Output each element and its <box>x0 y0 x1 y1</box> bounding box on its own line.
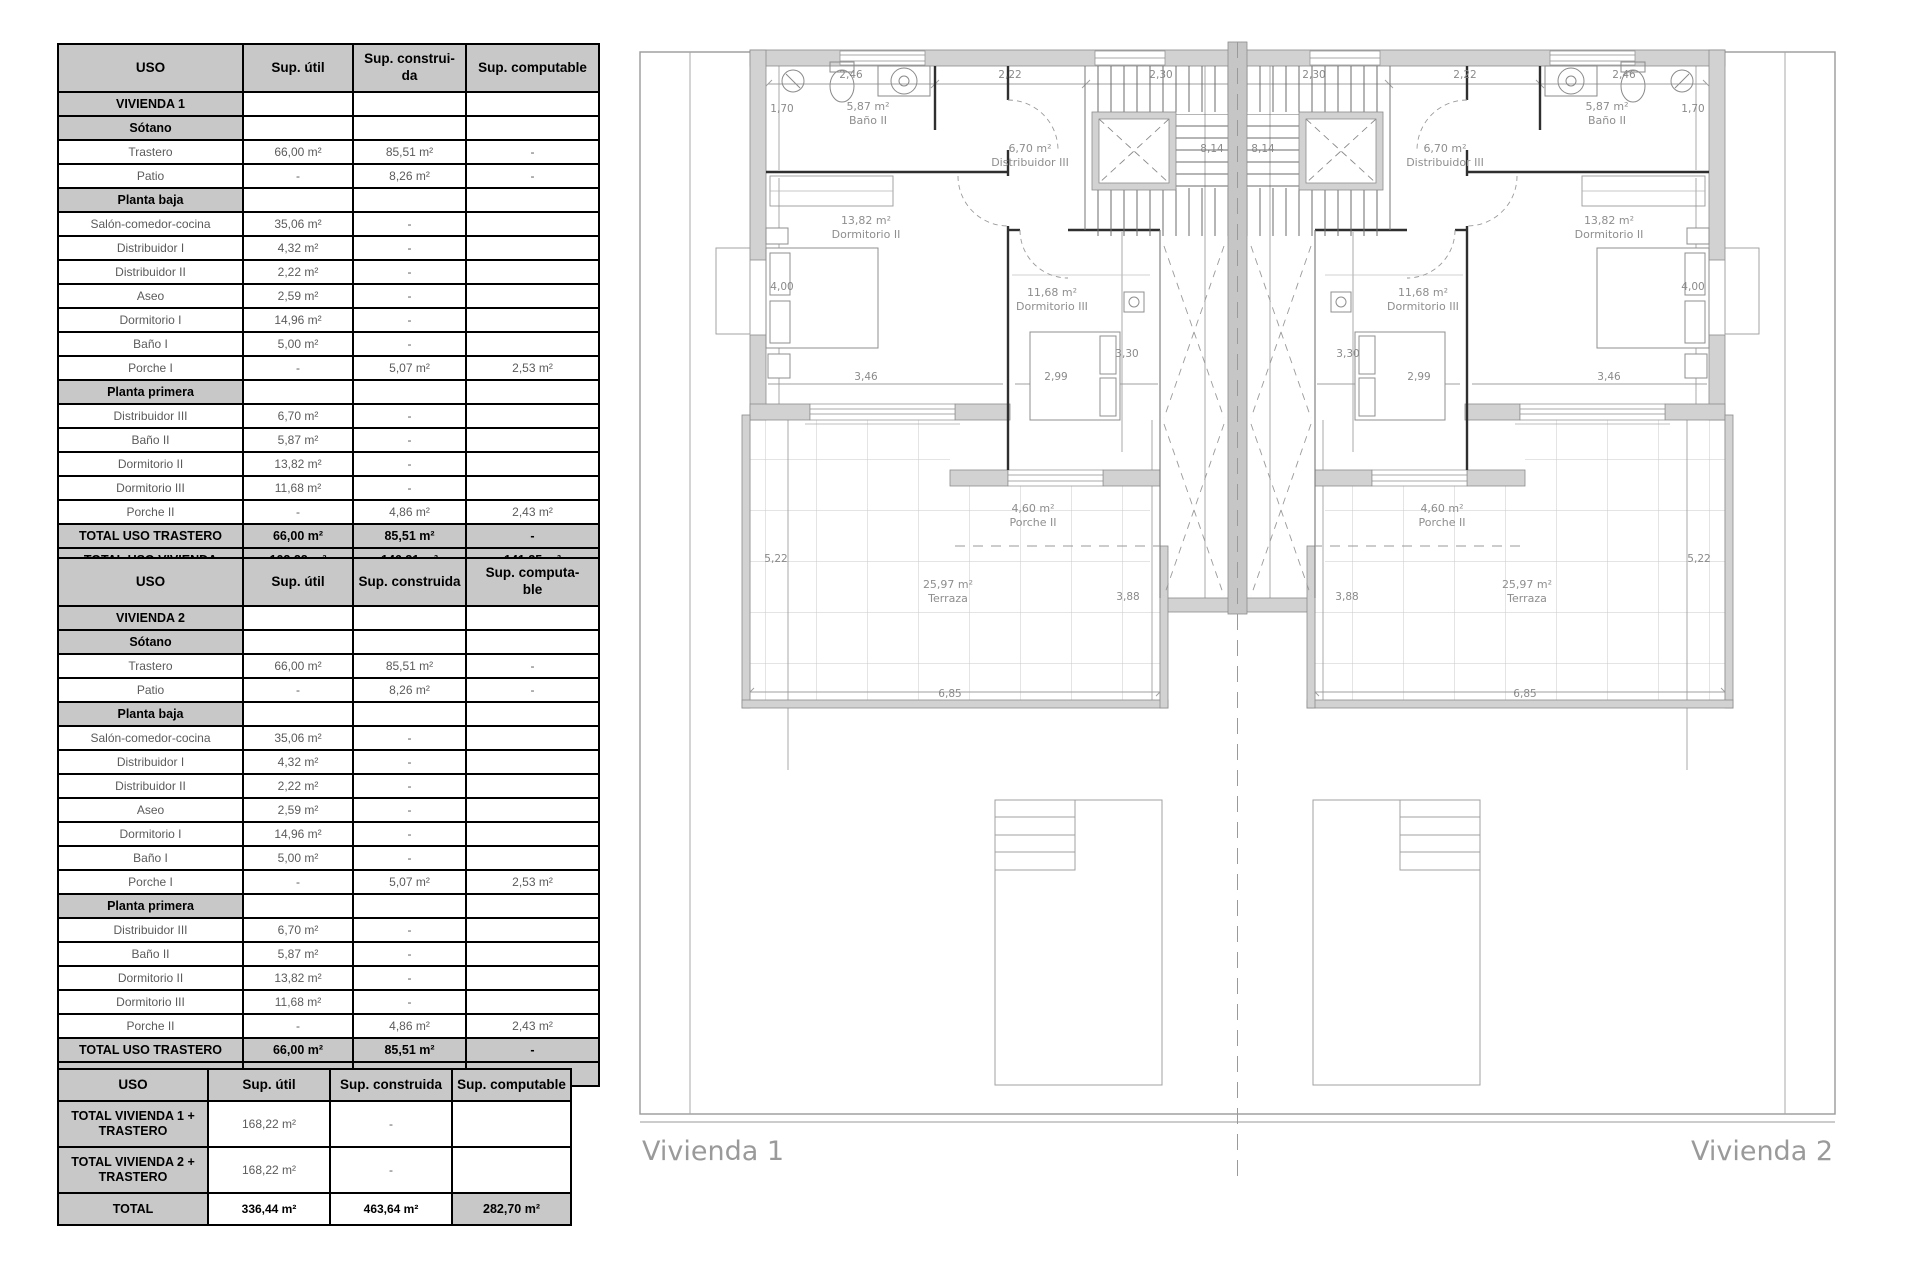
table-cell <box>466 726 599 750</box>
table-cell <box>353 116 466 140</box>
table-cell: - <box>243 870 353 894</box>
table-row: Planta baja <box>58 188 599 212</box>
column-header: Sup. útil <box>208 1069 330 1101</box>
table-cell <box>243 188 353 212</box>
table-cell: Distribuidor II <box>58 260 243 284</box>
table-cell: Dormitorio II <box>58 966 243 990</box>
dimension-label: 3,46 <box>1597 371 1621 383</box>
table-cell <box>243 630 353 654</box>
table-cell: 6,70 m² <box>243 404 353 428</box>
dimension-label: 3,46 <box>854 371 878 383</box>
table-cell <box>353 92 466 116</box>
table-cell: Aseo <box>58 798 243 822</box>
table-cell <box>466 332 599 356</box>
table-cell: 85,51 m² <box>353 140 466 164</box>
table-cell: - <box>353 798 466 822</box>
table-cell <box>466 894 599 918</box>
dimension-label: 5,22 <box>764 553 787 565</box>
table-cell: Planta baja <box>58 188 243 212</box>
table-cell <box>466 212 599 236</box>
table-cell: 8,26 m² <box>353 164 466 188</box>
table-cell: 2,53 m² <box>466 870 599 894</box>
column-header: USO <box>58 44 243 92</box>
table-cell: - <box>243 164 353 188</box>
table-cell <box>466 966 599 990</box>
dimension-label: 2,22 <box>1453 69 1476 81</box>
table-row: VIVIENDA 1 <box>58 92 599 116</box>
table-cell: 85,51 m² <box>353 524 466 548</box>
table-row: Baño II5,87 m²- <box>58 942 599 966</box>
table-cell: Porche I <box>58 356 243 380</box>
table-cell: 5,87 m² <box>243 428 353 452</box>
table-cell <box>466 630 599 654</box>
table-row: Dormitorio III11,68 m²- <box>58 990 599 1014</box>
table-cell: Dormitorio III <box>58 476 243 500</box>
table-cell: - <box>466 164 599 188</box>
table-cell <box>466 822 599 846</box>
table-cell: 66,00 m² <box>243 654 353 678</box>
table-row: Distribuidor II2,22 m²- <box>58 260 599 284</box>
table-cell: 282,70 m² <box>452 1193 571 1225</box>
table-cell <box>466 774 599 798</box>
table-cell: 13,82 m² <box>243 966 353 990</box>
column-header: Sup. computable <box>452 1069 571 1101</box>
table-cell: TOTAL VIVIENDA 1 + TRASTERO <box>58 1101 208 1147</box>
table-cell: 85,51 m² <box>353 1038 466 1062</box>
vivienda-2-label: Vivienda 2 <box>1691 1136 1833 1167</box>
table-row: Patio-8,26 m²- <box>58 678 599 702</box>
floorplan: 5,87 m²Baño II6,70 m²Distribuidor III13,… <box>630 40 1850 1180</box>
dimension-label: 2,30 <box>1149 69 1172 81</box>
table-cell <box>466 116 599 140</box>
table-cell <box>353 188 466 212</box>
column-header: Sup. computa- ble <box>466 558 599 606</box>
table-cell <box>452 1147 571 1193</box>
table-cell: Aseo <box>58 284 243 308</box>
table-row: Dormitorio I14,96 m²- <box>58 822 599 846</box>
table-cell: 66,00 m² <box>243 140 353 164</box>
table-cell <box>466 750 599 774</box>
table-cell <box>466 452 599 476</box>
table-cell: 5,07 m² <box>353 356 466 380</box>
column-header: Sup. computable <box>466 44 599 92</box>
table-cell: Porche II <box>58 1014 243 1038</box>
table-cell <box>466 846 599 870</box>
table-cell: TOTAL VIVIENDA 2 + TRASTERO <box>58 1147 208 1193</box>
table-cell: 11,68 m² <box>243 990 353 1014</box>
table-cell: Trastero <box>58 654 243 678</box>
table-cell <box>243 116 353 140</box>
table-cell <box>353 606 466 630</box>
table-cell: 13,82 m² <box>243 452 353 476</box>
table-cell: - <box>353 428 466 452</box>
table-row: TOTAL VIVIENDA 2 + TRASTERO168,22 m²- <box>58 1147 571 1193</box>
table-cell <box>452 1101 571 1147</box>
table-cell: - <box>353 942 466 966</box>
table-cell: Dormitorio III <box>58 990 243 1014</box>
table-row: Distribuidor II2,22 m²- <box>58 774 599 798</box>
dimension-label: 1,70 <box>1681 103 1704 115</box>
table-row: Sótano <box>58 116 599 140</box>
table-cell: 5,00 m² <box>243 332 353 356</box>
table-cell: 168,22 m² <box>208 1147 330 1193</box>
table-cell: 11,68 m² <box>243 476 353 500</box>
table-cell: - <box>353 476 466 500</box>
table-cell <box>466 798 599 822</box>
table-cell <box>466 428 599 452</box>
table-row: Aseo2,59 m²- <box>58 284 599 308</box>
table-cell: Planta baja <box>58 702 243 726</box>
table-cell <box>243 702 353 726</box>
table-row: Planta primera <box>58 894 599 918</box>
table-cell: Sótano <box>58 116 243 140</box>
table-cell: - <box>466 1038 599 1062</box>
table-cell: 85,51 m² <box>353 654 466 678</box>
room-label: 5,87 m²Baño II <box>1585 100 1628 127</box>
dimension-label: 8,14 <box>1200 143 1224 155</box>
table-cell: - <box>243 500 353 524</box>
table-cell: 2,59 m² <box>243 798 353 822</box>
dimension-label: 2,46 <box>839 69 863 81</box>
table-row: Dormitorio II13,82 m²- <box>58 966 599 990</box>
table-cell: Baño II <box>58 942 243 966</box>
table-row: Planta primera <box>58 380 599 404</box>
table-cell: Distribuidor III <box>58 918 243 942</box>
table-cell: 463,64 m² <box>330 1193 452 1225</box>
area-table-totals: USOSup. útilSup. construidaSup. computab… <box>57 1068 572 1226</box>
table-cell: 4,86 m² <box>353 500 466 524</box>
table-row: Distribuidor III6,70 m²- <box>58 404 599 428</box>
table-cell: - <box>353 966 466 990</box>
table-cell: - <box>466 678 599 702</box>
table-cell: Porche I <box>58 870 243 894</box>
dimension-label: 2,30 <box>1302 69 1325 81</box>
table-cell <box>353 702 466 726</box>
table-cell: 2,22 m² <box>243 260 353 284</box>
table-row: Porche II-4,86 m²2,43 m² <box>58 1014 599 1038</box>
table-cell: 4,32 m² <box>243 750 353 774</box>
table-cell: Salón-comedor-cocina <box>58 212 243 236</box>
table-row: TOTAL VIVIENDA 1 + TRASTERO168,22 m²- <box>58 1101 571 1147</box>
table-cell: 14,96 m² <box>243 822 353 846</box>
room-label: 4,60 m²Porche II <box>1418 502 1465 529</box>
dimension-label: 1,70 <box>770 103 793 115</box>
table-cell: 35,06 m² <box>243 726 353 750</box>
table-cell <box>353 894 466 918</box>
table-cell: Planta primera <box>58 380 243 404</box>
table-cell: - <box>330 1101 452 1147</box>
table-cell: - <box>353 918 466 942</box>
table-cell: - <box>353 404 466 428</box>
room-label: 13,82 m²Dormitorio II <box>832 214 901 241</box>
table-row: Baño I5,00 m²- <box>58 332 599 356</box>
dimension-label: 3,88 <box>1116 591 1139 603</box>
table-cell: - <box>466 140 599 164</box>
table-header-row: USOSup. útilSup. construidaSup. computa-… <box>58 558 599 606</box>
column-header: USO <box>58 1069 208 1101</box>
table-cell: - <box>243 356 353 380</box>
table-cell: TOTAL USO TRASTERO <box>58 1038 243 1062</box>
table-cell: Distribuidor II <box>58 774 243 798</box>
table-cell: Patio <box>58 678 243 702</box>
table-row: Salón-comedor-cocina35,06 m²- <box>58 212 599 236</box>
dimension-label: 2,46 <box>1612 69 1636 81</box>
table-row: Distribuidor I4,32 m²- <box>58 750 599 774</box>
table-cell: - <box>353 726 466 750</box>
dimension-label: 2,99 <box>1407 371 1430 383</box>
room-label: 25,97 m²Terraza <box>923 578 973 605</box>
table-row: TOTAL USO TRASTERO66,00 m²85,51 m²- <box>58 524 599 548</box>
column-header: Sup. útil <box>243 44 353 92</box>
table-cell: - <box>353 774 466 798</box>
table-cell: - <box>353 822 466 846</box>
table-cell: Dormitorio II <box>58 452 243 476</box>
dimension-label: 2,22 <box>998 69 1021 81</box>
table-row: Trastero66,00 m²85,51 m²- <box>58 654 599 678</box>
table-row: TOTAL336,44 m²463,64 m²282,70 m² <box>58 1193 571 1225</box>
room-label: 4,60 m²Porche II <box>1009 502 1056 529</box>
table-cell: Porche II <box>58 500 243 524</box>
column-header: Sup. construida <box>330 1069 452 1101</box>
table-cell <box>466 942 599 966</box>
table-cell: 14,96 m² <box>243 308 353 332</box>
table-cell <box>353 630 466 654</box>
table-row: Porche I-5,07 m²2,53 m² <box>58 870 599 894</box>
table-cell <box>466 188 599 212</box>
table-cell: 6,70 m² <box>243 918 353 942</box>
column-header: Sup. construi- da <box>353 44 466 92</box>
table-cell: 2,43 m² <box>466 500 599 524</box>
table-row: Salón-comedor-cocina35,06 m²- <box>58 726 599 750</box>
table-cell <box>466 308 599 332</box>
table-cell <box>466 260 599 284</box>
table-cell <box>353 380 466 404</box>
table-cell <box>243 606 353 630</box>
table-cell: - <box>353 308 466 332</box>
table-cell: Patio <box>58 164 243 188</box>
dimension-label: 6,85 <box>1513 688 1536 700</box>
table-cell: - <box>353 846 466 870</box>
table-cell: 2,53 m² <box>466 356 599 380</box>
table-cell: 5,00 m² <box>243 846 353 870</box>
table-cell: Trastero <box>58 140 243 164</box>
dimension-label: 3,30 <box>1336 348 1359 360</box>
table-cell: - <box>466 654 599 678</box>
table-cell <box>466 236 599 260</box>
table-cell: 4,32 m² <box>243 236 353 260</box>
table-cell: Baño I <box>58 332 243 356</box>
table-row: Dormitorio II13,82 m²- <box>58 452 599 476</box>
table-cell: TOTAL USO TRASTERO <box>58 524 243 548</box>
table-header-row: USOSup. útilSup. construi- daSup. comput… <box>58 44 599 92</box>
table-cell <box>466 380 599 404</box>
table-cell: 5,87 m² <box>243 942 353 966</box>
table-cell: - <box>353 452 466 476</box>
table-cell: VIVIENDA 2 <box>58 606 243 630</box>
table-cell <box>466 404 599 428</box>
table-cell: VIVIENDA 1 <box>58 92 243 116</box>
table-cell: - <box>466 524 599 548</box>
dimension-label: 2,99 <box>1044 371 1067 383</box>
dimension-label: 3,88 <box>1335 591 1358 603</box>
table-cell: 2,59 m² <box>243 284 353 308</box>
room-label: 25,97 m²Terraza <box>1502 578 1552 605</box>
table-cell: 168,22 m² <box>208 1101 330 1147</box>
table-row: Porche I-5,07 m²2,53 m² <box>58 356 599 380</box>
table-cell <box>466 284 599 308</box>
column-header: USO <box>58 558 243 606</box>
table-cell: 336,44 m² <box>208 1193 330 1225</box>
table-cell <box>466 702 599 726</box>
table-row: Dormitorio I14,96 m²- <box>58 308 599 332</box>
table-cell: Salón-comedor-cocina <box>58 726 243 750</box>
table-row: Distribuidor I4,32 m²- <box>58 236 599 260</box>
table-cell: 5,07 m² <box>353 870 466 894</box>
table-row: Aseo2,59 m²- <box>58 798 599 822</box>
table-cell <box>466 92 599 116</box>
column-header: Sup. construida <box>353 558 466 606</box>
area-table-vivienda-1: USOSup. útilSup. construi- daSup. comput… <box>57 43 600 573</box>
area-table-vivienda-2: USOSup. útilSup. construidaSup. computa-… <box>57 557 600 1087</box>
dimension-label: 5,22 <box>1687 553 1710 565</box>
table-header-row: USOSup. útilSup. construidaSup. computab… <box>58 1069 571 1101</box>
table-row: Dormitorio III11,68 m²- <box>58 476 599 500</box>
table-cell: - <box>353 332 466 356</box>
table-row: Planta baja <box>58 702 599 726</box>
table-cell: - <box>243 678 353 702</box>
table-cell: - <box>330 1147 452 1193</box>
table-row: VIVIENDA 2 <box>58 606 599 630</box>
table-cell: 35,06 m² <box>243 212 353 236</box>
table-cell: 2,22 m² <box>243 774 353 798</box>
table-cell: - <box>353 284 466 308</box>
table-cell: Distribuidor I <box>58 750 243 774</box>
room-label: 6,70 m²Distribuidor III <box>1406 142 1484 169</box>
table-cell: 66,00 m² <box>243 1038 353 1062</box>
table-row: Baño I5,00 m²- <box>58 846 599 870</box>
table-cell: 4,86 m² <box>353 1014 466 1038</box>
dimension-label: 4,00 <box>1681 281 1704 293</box>
table-cell: 2,43 m² <box>466 1014 599 1038</box>
dimension-label: 4,00 <box>770 281 793 293</box>
table-cell: Distribuidor I <box>58 236 243 260</box>
table-cell <box>466 918 599 942</box>
table-cell: Planta primera <box>58 894 243 918</box>
vivienda-1-label: Vivienda 1 <box>642 1136 784 1167</box>
table-cell <box>466 606 599 630</box>
table-row: Distribuidor III6,70 m²- <box>58 918 599 942</box>
column-header: Sup. útil <box>243 558 353 606</box>
table-cell: - <box>243 1014 353 1038</box>
dimension-label: 3,30 <box>1115 348 1138 360</box>
table-cell: - <box>353 212 466 236</box>
dimension-label: 6,85 <box>938 688 961 700</box>
table-row: Porche II-4,86 m²2,43 m² <box>58 500 599 524</box>
table-cell: - <box>353 990 466 1014</box>
table-cell: Sótano <box>58 630 243 654</box>
table-row: Baño II5,87 m²- <box>58 428 599 452</box>
dimension-label: 8,14 <box>1251 143 1275 155</box>
table-cell <box>243 92 353 116</box>
table-cell <box>466 990 599 1014</box>
table-cell <box>243 894 353 918</box>
plan-sheet: USOSup. útilSup. construi- daSup. comput… <box>0 0 1920 1280</box>
table-cell: 66,00 m² <box>243 524 353 548</box>
table-cell <box>466 476 599 500</box>
room-label: 6,70 m²Distribuidor III <box>991 142 1069 169</box>
table-cell: Distribuidor III <box>58 404 243 428</box>
room-label: 13,82 m²Dormitorio II <box>1575 214 1644 241</box>
table-cell: 8,26 m² <box>353 678 466 702</box>
table-cell <box>243 380 353 404</box>
table-row: TOTAL USO TRASTERO66,00 m²85,51 m²- <box>58 1038 599 1062</box>
table-cell: Baño II <box>58 428 243 452</box>
table-row: Patio-8,26 m²- <box>58 164 599 188</box>
table-cell: - <box>353 236 466 260</box>
room-label: 5,87 m²Baño II <box>846 100 889 127</box>
table-row: Trastero66,00 m²85,51 m²- <box>58 140 599 164</box>
table-cell: TOTAL <box>58 1193 208 1225</box>
table-cell: - <box>353 260 466 284</box>
table-cell: - <box>353 750 466 774</box>
table-cell: Dormitorio I <box>58 308 243 332</box>
table-cell: Dormitorio I <box>58 822 243 846</box>
table-row: Sótano <box>58 630 599 654</box>
table-cell: Baño I <box>58 846 243 870</box>
